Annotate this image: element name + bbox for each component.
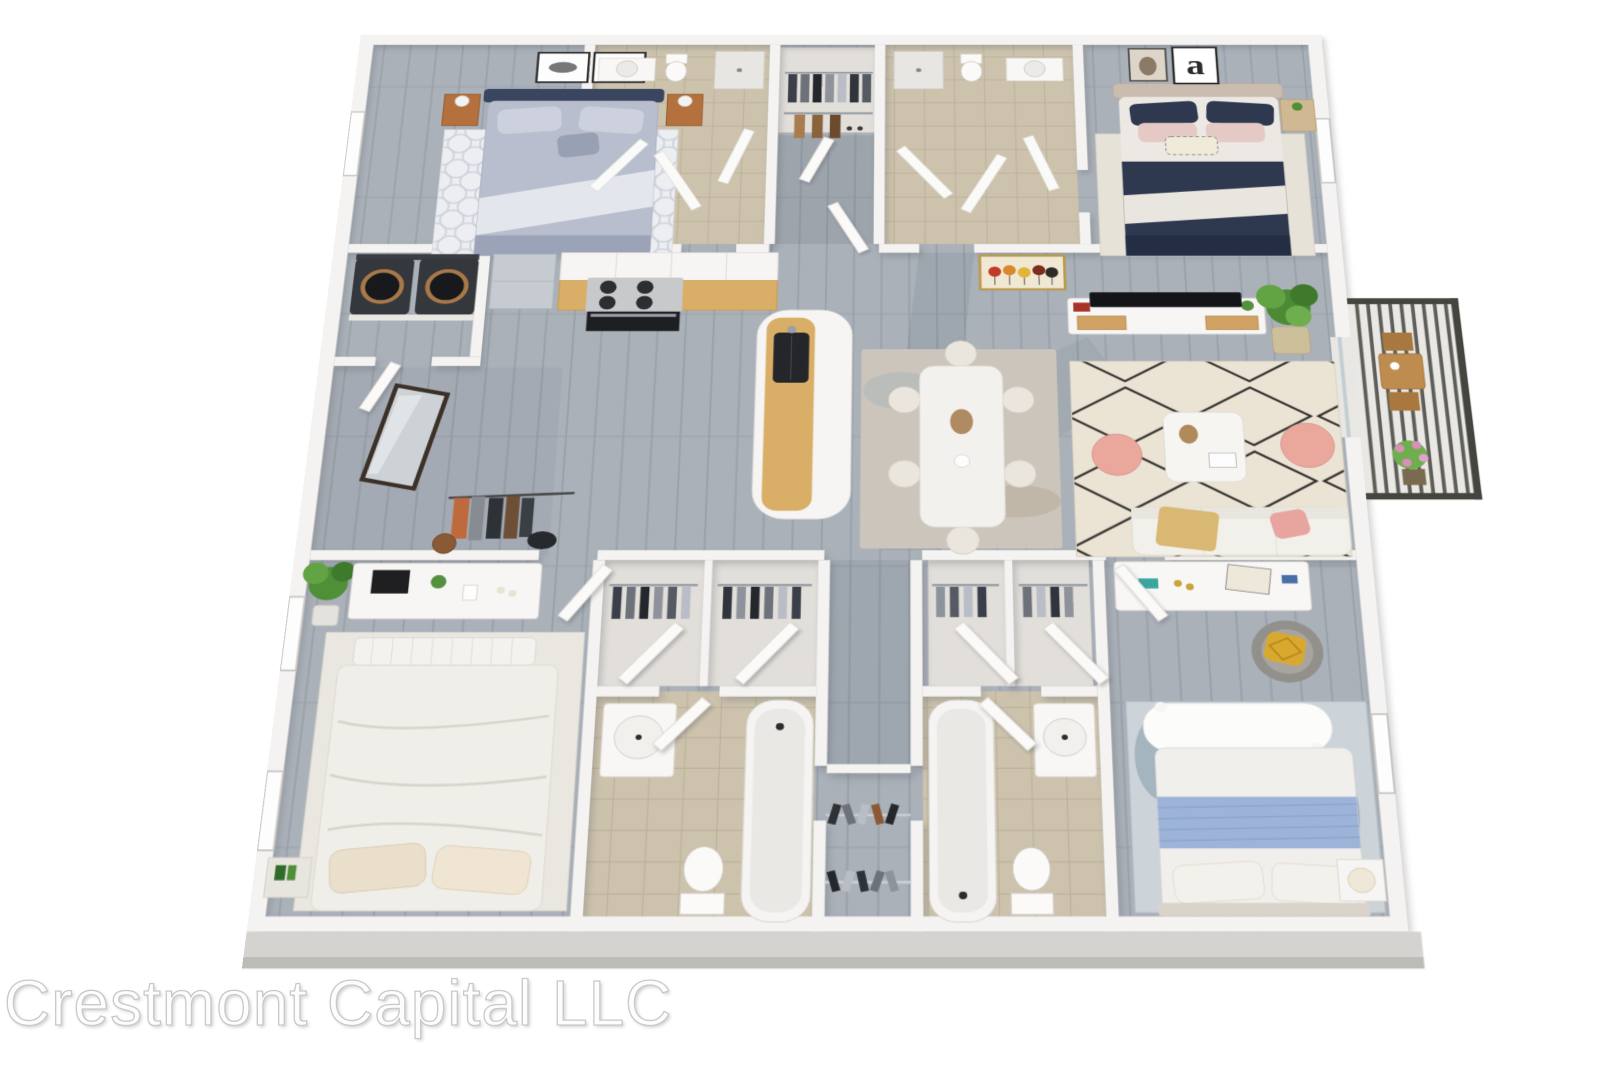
console-drawer xyxy=(1077,316,1126,329)
colorful-artwork xyxy=(980,256,1066,290)
toilet xyxy=(1012,847,1051,890)
duvet-fold xyxy=(1125,235,1291,255)
pillow-striped xyxy=(1165,137,1218,155)
book xyxy=(1209,453,1237,467)
green-book xyxy=(274,865,286,880)
tv xyxy=(1089,292,1242,307)
toilet-tank xyxy=(680,894,725,915)
bench xyxy=(353,638,537,666)
floor-plan-svg: a xyxy=(239,34,1572,992)
shower-drain xyxy=(916,68,921,72)
oven-handle xyxy=(591,314,677,317)
headboard xyxy=(483,89,664,103)
coffee-table xyxy=(1163,412,1248,482)
dining-area xyxy=(860,341,1063,554)
bathtub-inner xyxy=(937,709,989,913)
pillow-navy xyxy=(1129,101,1199,126)
floor-plan-3d: a xyxy=(239,34,1572,992)
toilet xyxy=(961,61,982,81)
pillow xyxy=(577,106,645,135)
pillow xyxy=(430,845,533,896)
shoe xyxy=(857,126,862,130)
pillow-navy xyxy=(1206,101,1274,126)
hanging-garments xyxy=(450,496,534,540)
document-frame xyxy=(1226,564,1272,594)
bistro-table xyxy=(1378,354,1425,389)
sink-basin xyxy=(1024,61,1046,77)
floor-plan-screenshot: a xyxy=(0,0,1620,1080)
stove-cooktop xyxy=(585,278,683,312)
fur-bench xyxy=(1142,704,1334,752)
console-decor xyxy=(1073,303,1090,312)
headboard xyxy=(1113,84,1284,99)
yellow-throw xyxy=(1155,506,1219,552)
lamp xyxy=(678,96,693,107)
toilet-tank xyxy=(1011,894,1053,915)
balcony xyxy=(1347,298,1482,499)
machine-front xyxy=(349,315,474,321)
pillow xyxy=(497,106,562,135)
dryer-drum xyxy=(426,271,468,302)
vase xyxy=(462,585,477,600)
accent-pillow xyxy=(557,132,600,158)
photo-frame xyxy=(370,570,410,593)
watermark-text: Crestmont Capital LLC xyxy=(4,966,672,1040)
washer-drum xyxy=(361,271,403,302)
hanging-coats xyxy=(794,115,841,138)
pillow xyxy=(1172,861,1266,904)
dining-table xyxy=(920,366,1006,527)
bistro-chair xyxy=(1382,333,1414,351)
sink-basin xyxy=(616,61,638,77)
bathtub-inner xyxy=(749,709,806,913)
letter-print-text: a xyxy=(1185,49,1206,81)
upper-cabinets xyxy=(560,253,778,281)
dish xyxy=(954,455,969,468)
console-drawer xyxy=(1206,316,1259,329)
artwork-frames: a xyxy=(1128,47,1218,83)
slab-edge xyxy=(239,932,1425,969)
desk-decor xyxy=(1281,575,1297,583)
pillow xyxy=(329,842,426,894)
headboard xyxy=(1158,903,1371,916)
bistro-chair xyxy=(1388,392,1420,411)
